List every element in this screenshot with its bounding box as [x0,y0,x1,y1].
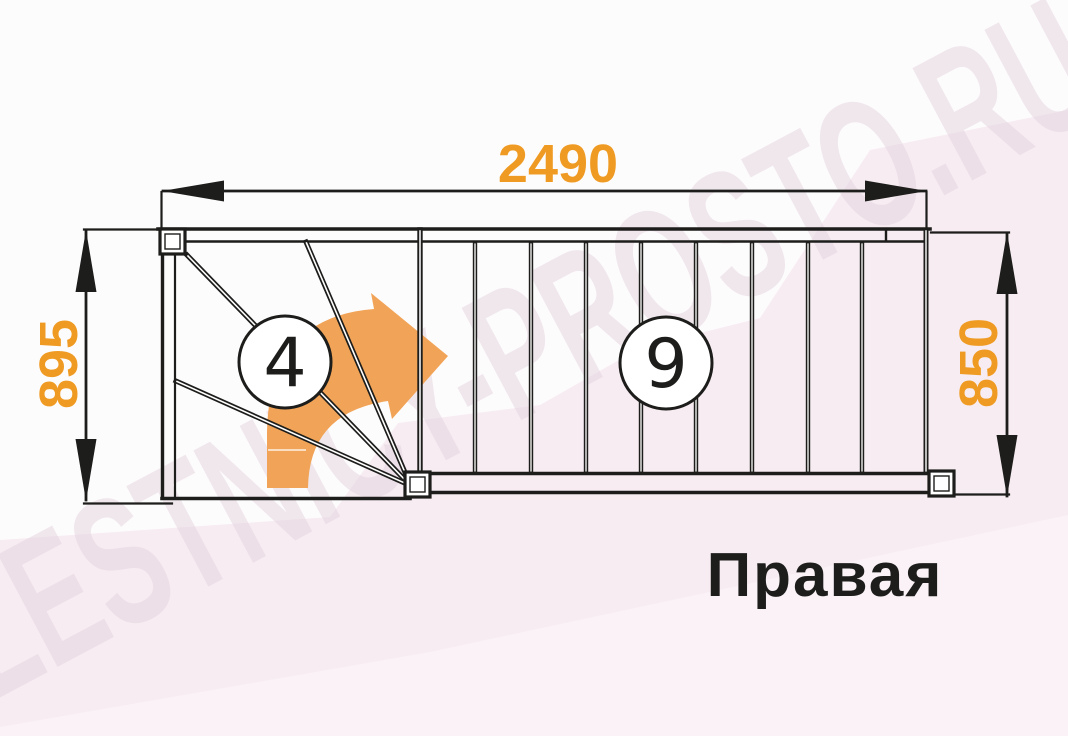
newel-post-middle [405,472,430,497]
flight-count-label: 9 [644,325,687,404]
staircase-plan-diagram: LESTNICY-PROSTO.RU [0,0,1068,736]
dim-total-length-value: 2490 [498,134,618,194]
newel-post-bottom-right [929,471,954,496]
stair-type-label: Правая [707,541,944,610]
dim-left-width-value: 895 [29,319,89,409]
dim-right-width-value: 850 [949,318,1009,408]
winder-count-label: 4 [263,324,306,403]
newel-post-top-left [160,229,185,254]
plan-canvas: LESTNICY-PROSTO.RU [0,0,1068,736]
